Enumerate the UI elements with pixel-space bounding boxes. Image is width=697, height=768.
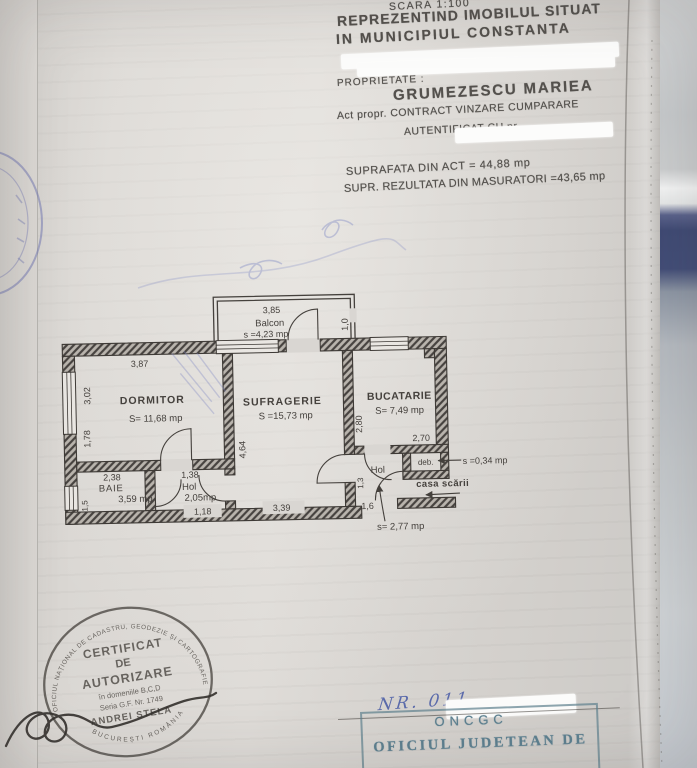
- bedroom-dim-top: 3,87: [131, 359, 149, 369]
- balcony-dim-top: 3,85: [263, 305, 281, 315]
- office-abbr: ONCGC: [434, 711, 508, 729]
- balcony-area: s =4,23 mp: [244, 329, 289, 340]
- kitchen-dim-bottom: 2,70: [412, 433, 430, 443]
- pantry-label: deb.: [418, 458, 434, 467]
- bedroom-dim-left-upper: 3,02: [82, 387, 92, 405]
- balcony-dim-right: 1,0: [340, 318, 350, 331]
- bath-dim-left: 1,5: [80, 500, 89, 512]
- bedroom-dim-left-lower: 1,78: [82, 430, 92, 448]
- hall-area-arrow-icon: [379, 486, 385, 521]
- hall2-label: Hol: [371, 465, 385, 476]
- bedroom-area: S= 11,68 mp: [129, 413, 183, 425]
- kitchen-label: BUCATARIE: [367, 390, 432, 403]
- living-dim-left: 4,64: [237, 441, 247, 459]
- stairwell-arrow-icon: [426, 493, 459, 495]
- plan-arrows: [379, 460, 462, 521]
- certification-stamp: OFICIUL NAȚIONAL DE CADASTRU, GEODEZIE Ș…: [0, 598, 250, 768]
- floor-plan: 3,85 Balcon s =4,23 mp 1,0 3,87 3,02 1,7…: [34, 280, 554, 550]
- living-dim-bottom: 3,39: [273, 503, 291, 513]
- hall1-dim-bottom: 1,18: [194, 506, 212, 516]
- pantry-area: s =0,34 mp: [463, 455, 508, 466]
- office-name: OFICIUL JUDETEAN DE: [373, 731, 588, 756]
- scanned-document-photo: SCARA 1:100 REPREZENTIND IMOBILUL SITUAT…: [0, 0, 697, 768]
- window: [216, 339, 278, 353]
- balcony-label: Balcon: [255, 318, 284, 330]
- window: [65, 486, 78, 510]
- hall2-dim-bottom: 1,6: [361, 501, 374, 511]
- hall1-dim-top: 1,38: [181, 470, 199, 480]
- bedroom-label: DORMITOR: [120, 394, 185, 407]
- window: [62, 372, 76, 434]
- bath-area: 3,59 mp: [118, 494, 153, 506]
- hall2-area: s= 2,77 mp: [377, 521, 424, 533]
- stairwell-label: casa scării: [416, 478, 469, 490]
- window: [370, 337, 408, 351]
- bath-label: BAIE: [99, 483, 124, 495]
- background-surface: [660, 0, 697, 768]
- hall1-area: 2,05mp: [184, 492, 216, 504]
- living-label: SUFRAGERIE: [243, 395, 322, 409]
- stamp-line2: DE: [115, 656, 132, 670]
- kitchen-area: S= 7,49 mp: [375, 405, 424, 417]
- hall1-label: Hol: [182, 482, 196, 493]
- bath-dim-top: 2,38: [103, 472, 121, 482]
- office-stamp-box: ONCGC OFICIUL JUDETEAN DE: [360, 703, 601, 768]
- living-area: S =15,73 mp: [259, 410, 313, 422]
- hall2-dim-left: 1,3: [356, 477, 365, 489]
- paper-edge-shade: [628, 0, 662, 768]
- kitchen-dim-left: 2,80: [354, 415, 364, 433]
- deed-line1: Act propr. CONTRACT VINZARE CUMPARARE: [337, 98, 579, 122]
